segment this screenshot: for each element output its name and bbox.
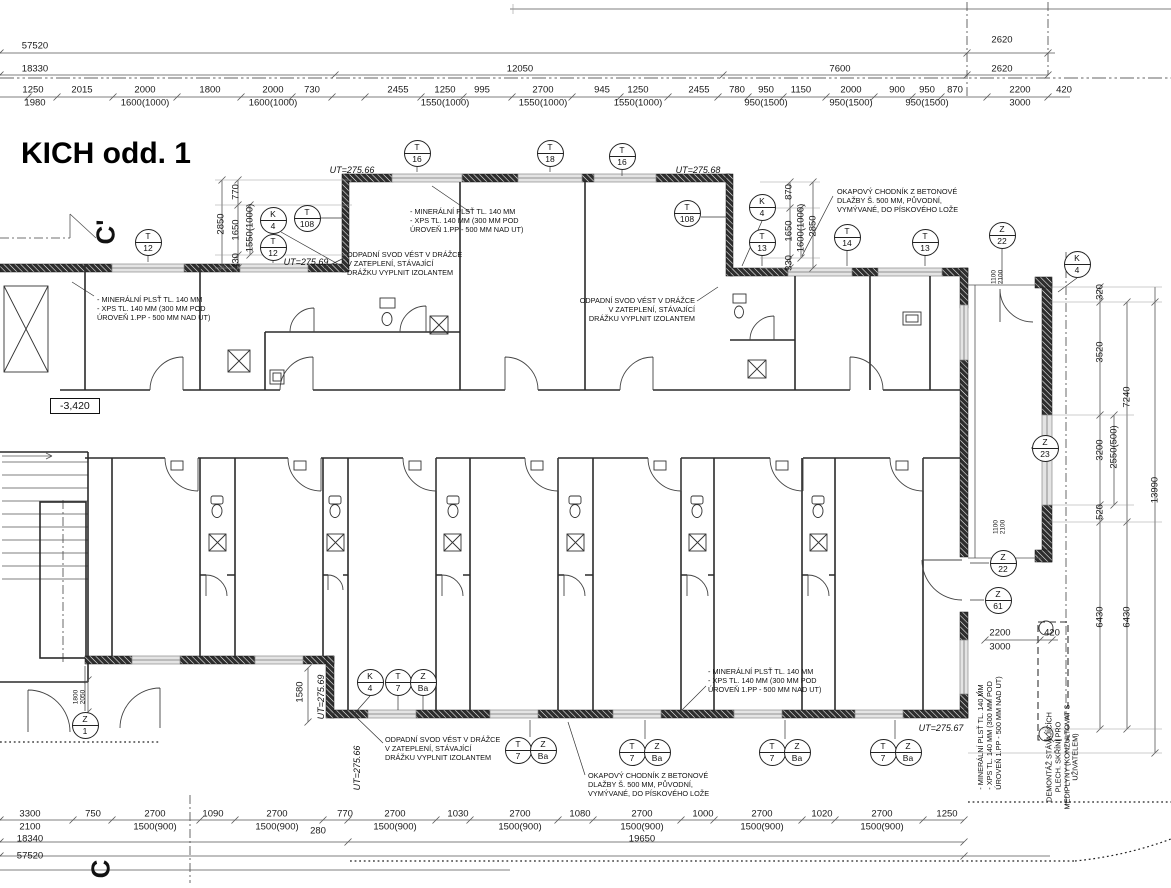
dimension-label: 2550(500) [1109,425,1120,468]
dimension-label: 770 [337,809,353,820]
reference-marker-bubble: Z22 [989,222,1016,249]
marker-letter: T [760,740,785,753]
ground-level-label: UT=275.69 [316,675,326,720]
marker-number: 7 [620,753,645,765]
marker-letter: Z [645,740,670,753]
reference-marker-bubble: T16 [609,143,636,170]
annotation-note: OKAPOVÝ CHODNÍK Z BETONOVÉDLAŽBY Š. 500 … [588,772,709,798]
marker-letter: Z [531,738,556,751]
reference-marker-bubble: T12 [260,234,287,261]
reference-marker-bubble: ZBa [644,739,671,766]
marker-letter: T [386,670,411,683]
annotation-note: DEMONTÁŽ STÁVAJÍCÍCHPLECH. SKŘÍNÍ PROMED… [1046,705,1081,810]
marker-number: 7 [871,753,896,765]
annotation-line: VYMÝVANÉ, DO PÍSKOVÉHO LOŽE [837,206,958,215]
dimension-label: 3000 [989,642,1010,653]
marker-number: Ba [411,683,436,695]
dimension-label: 3200 [1095,439,1106,460]
dimension-label: 2700 [871,809,892,820]
reference-marker-bubble: T18 [537,140,564,167]
dimension-label: 1020 [811,809,832,820]
marker-letter: T [136,230,161,243]
dimension-label: 420 [1044,628,1060,639]
dimension-label: 520 [1095,504,1106,520]
reference-marker-bubble: ZBa [530,737,557,764]
dimension-label: 2620 [991,35,1012,46]
marker-letter: T [610,144,635,157]
marker-letter: T [675,201,700,214]
annotation-note: - MINERÁLNÍ PLSŤ TL. 140 MM- XPS TL. 140… [97,296,210,322]
reference-marker-bubble: K4 [749,194,776,221]
dimension-label: 2700 [144,809,165,820]
dimension-label: 900 [889,85,905,96]
reference-marker-bubble: K4 [1064,251,1091,278]
marker-letter: K [261,208,286,221]
dimension-label: 1000 [692,809,713,820]
dimension-label: 1250 [627,85,648,96]
dimension-label: 2620 [991,64,1012,75]
marker-letter: Z [1033,436,1058,449]
marker-letter: Z [896,740,921,753]
marker-number: 1 [73,726,98,738]
marker-number: 4 [358,683,383,695]
dimension-label: 945 [594,85,610,96]
annotation-line: DRÁŽKU VYPLNIT IZOLANTEM [347,269,462,278]
dimension-label: 2100 [1000,520,1007,534]
ground-level-label: UT=275.66 [352,746,362,791]
dimension-label: 18340 [17,834,43,845]
dimension-label: 1980 [24,98,45,109]
dimension-label: 1600(1000) [121,98,170,109]
dimension-label: 1500(900) [860,822,903,833]
dimension-label: 770 [231,184,242,200]
ground-level-label: UT=275.68 [676,165,721,175]
reference-marker-bubble: Z22 [990,550,1017,577]
dimension-label: 7600 [829,64,850,75]
reference-marker-bubble: T13 [749,229,776,256]
reference-marker-bubble: ZBa [410,669,437,696]
marker-number: 108 [295,219,320,231]
dimension-label: 2700 [532,85,553,96]
dimension-label: 1800 [73,690,80,704]
dimension-label: 330 [784,255,795,271]
reference-marker-bubble: K4 [260,207,287,234]
annotation-line: ÚROVEŇ 1.PP - 500 MM NAD UT) [994,676,1003,789]
dimension-label: 2100 [998,270,1005,284]
marker-number: 4 [1065,265,1090,277]
dimension-label: 950(1500) [829,98,872,109]
marker-number: 61 [986,601,1011,613]
dimension-label: 1500(900) [498,822,541,833]
dimension-label: 750 [85,809,101,820]
dimension-label: 2700 [384,809,405,820]
marker-number: 12 [261,248,286,260]
dimension-label: 2700 [266,809,287,820]
dimension-label: 995 [474,85,490,96]
reference-marker-bubble: T108 [674,200,701,227]
marker-number: Ba [896,753,921,765]
reference-marker-bubble: T16 [404,140,431,167]
dimension-label: 870 [784,184,795,200]
annotation-note: OKAPOVÝ CHODNÍK Z BETONOVÉDLAŽBY Š. 500 … [837,188,958,214]
dimension-label: 1500(900) [620,822,663,833]
annotation-line: ÚROVEŇ 1.PP - 500 MM NAD UT) [410,226,523,235]
marker-letter: T [405,141,430,154]
marker-number: 7 [386,683,411,695]
dimension-label: 7240 [1122,386,1133,407]
dimension-label: 870 [947,85,963,96]
dimension-label: 780 [729,85,745,96]
reference-marker-bubble: T108 [294,205,321,232]
marker-letter: T [913,230,938,243]
annotation-line: ÚROVEŇ 1.PP - 500 MM NAD UT) [97,314,210,323]
section-mark: C' [91,220,122,245]
dimension-label: 1250 [936,809,957,820]
dimension-label: 1250 [434,85,455,96]
marker-letter: T [620,740,645,753]
marker-number: 13 [750,243,775,255]
dimension-label: 12050 [507,64,533,75]
dimension-label: 3000 [1009,98,1030,109]
dimension-label: 730 [304,85,320,96]
dimension-label: 320 [1095,284,1106,300]
dimension-label: 1550(1000) [245,204,256,253]
dimension-label: 2100 [19,822,40,833]
blueprint-canvas: KICH odd. 1 5752026201833012050760026201… [0,0,1171,888]
dimension-label: 1090 [202,809,223,820]
dimension-label: 420 [1056,85,1072,96]
marker-number: 23 [1033,449,1058,461]
dimension-label: 2000 [840,85,861,96]
dimension-label: 2000 [134,85,155,96]
dimension-label: 57520 [17,851,43,862]
marker-number: 22 [990,236,1015,248]
dimension-label: 1550(1000) [614,98,663,109]
dimension-label: 950(1500) [905,98,948,109]
marker-number: 7 [506,751,531,763]
marker-letter: Z [411,670,436,683]
marker-number: Ba [531,751,556,763]
annotation-note: ODPADNÍ SVOD VÉST V DRÁŽCEV ZATEPLENÍ, S… [580,297,695,323]
marker-letter: T [871,740,896,753]
reference-marker-bubble: T7 [385,669,412,696]
marker-number: 4 [750,208,775,220]
annotation-note: - MINERÁLNÍ PLSŤ TL. 140 MM- XPS TL. 140… [410,208,523,234]
dimension-label: 1550(1000) [519,98,568,109]
dimension-label: 1100 [991,270,998,284]
annotation-line: VYMÝVANÉ, DO PÍSKOVÉHO LOŽE [588,790,709,799]
reference-marker-bubble: T7 [505,737,532,764]
dimension-label: 1550(1000) [421,98,470,109]
dimension-label: 1150 [791,85,811,96]
marker-number: 4 [261,221,286,233]
reference-marker-bubble: T12 [135,229,162,256]
dimension-label: 2200 [989,628,1010,639]
reference-marker-bubble: Z23 [1032,435,1059,462]
marker-number: 13 [913,243,938,255]
marker-letter: Z [986,588,1011,601]
dimension-label: 1500(900) [373,822,416,833]
dimension-label: 2050 [80,690,87,704]
section-mark: C [86,860,117,879]
annotation-line: ÚROVEŇ 1.PP - 500 MM NAD UT) [708,686,821,695]
reference-marker-bubble: T7 [759,739,786,766]
marker-number: 12 [136,243,161,255]
marker-number: 22 [991,564,1016,576]
dimension-label: 1800 [199,85,220,96]
reference-marker-bubble: K4 [357,669,384,696]
dimension-label: 950(1500) [744,98,787,109]
annotation-note: - MINERÁLNÍ PLSŤ TL. 140 MM- XPS TL. 140… [977,676,1003,789]
dimension-label: 19650 [629,834,655,845]
ground-level-label: UT=275.69 [284,257,329,267]
dimension-label: 950 [758,85,774,96]
marker-letter: K [1065,252,1090,265]
reference-marker-bubble: T7 [619,739,646,766]
reference-marker-bubble: Z61 [985,587,1012,614]
dimension-label: 1100 [993,520,1000,534]
dimension-label: 3300 [19,809,40,820]
reference-marker-bubble: T14 [834,224,861,251]
reference-marker-bubble: T13 [912,229,939,256]
marker-number: 108 [675,214,700,226]
ground-level-label: UT=275.67 [919,723,964,733]
marker-number: Ba [785,753,810,765]
dimension-label: 18330 [22,64,48,75]
annotation-line: UŽIVATELEM) [1072,705,1081,810]
dimension-label: 1600(1000) [796,204,807,253]
dimension-label: 2000 [262,85,283,96]
marker-number: Ba [645,753,670,765]
dimension-label: 2850 [808,215,819,236]
reference-marker-bubble: Z1 [72,712,99,739]
dimension-label: 1080 [569,809,590,820]
marker-letter: Z [785,740,810,753]
dimension-label: 6430 [1095,606,1106,627]
marker-number: 18 [538,154,563,166]
dimension-label: 2455 [387,85,408,96]
dimension-label: 1500(900) [255,822,298,833]
dimension-label: 2700 [509,809,530,820]
dimension-label: 1030 [447,809,468,820]
marker-letter: K [358,670,383,683]
dimension-label: 280 [310,826,326,837]
dimension-label: 2015 [71,85,92,96]
dimension-label: 1580 [295,681,306,702]
dimension-label: 1500(900) [133,822,176,833]
dimension-label: 1250 [22,85,43,96]
marker-letter: T [538,141,563,154]
dimension-label: 13990 [1150,477,1161,503]
dimension-label: 2700 [751,809,772,820]
dimension-label: 3520 [1095,341,1106,362]
dimension-label: 6430 [1122,606,1133,627]
level-elevation-label: -3,420 [50,398,100,414]
dimension-label: 2200 [1009,85,1030,96]
marker-letter: T [261,235,286,248]
dimension-label: 2850 [216,213,227,234]
reference-marker-bubble: T7 [870,739,897,766]
dimension-label: 2455 [688,85,709,96]
annotation-note: - MINERÁLNÍ PLSŤ TL. 140 MM- XPS TL. 140… [708,668,821,694]
dimension-label: 1600(1000) [249,98,298,109]
dimension-label: 57520 [22,41,48,52]
dimension-label: 430 [231,253,242,269]
marker-number: 16 [610,157,635,169]
marker-letter: Z [991,551,1016,564]
ground-level-label: UT=275.66 [330,165,375,175]
dimension-label: 2700 [631,809,652,820]
reference-marker-bubble: ZBa [895,739,922,766]
marker-letter: T [835,225,860,238]
label-overlay: 5752026201833012050760026201250201520001… [0,0,1171,888]
marker-number: 16 [405,154,430,166]
annotation-note: ODPADNÍ SVOD VÉST V DRÁŽCEV ZATEPLENÍ, S… [347,251,462,277]
reference-marker-bubble: ZBa [784,739,811,766]
dimension-label: 1650 [231,219,242,240]
dimension-label: 1500(900) [740,822,783,833]
marker-letter: Z [73,713,98,726]
annotation-line: DRÁŽKU VYPLNIT IZOLANTEM [580,315,695,324]
marker-number: 14 [835,238,860,250]
annotation-note: ODPADNÍ SVOD VÉST V DRÁŽCEV ZATEPLENÍ, S… [385,736,500,762]
dimension-label: 1650 [784,220,795,241]
marker-letter: T [750,230,775,243]
marker-letter: T [295,206,320,219]
marker-letter: K [750,195,775,208]
marker-letter: Z [990,223,1015,236]
dimension-label: 950 [919,85,935,96]
marker-number: 7 [760,753,785,765]
annotation-line: DRÁŽKU VYPLNIT IZOLANTEM [385,754,500,763]
marker-letter: T [506,738,531,751]
